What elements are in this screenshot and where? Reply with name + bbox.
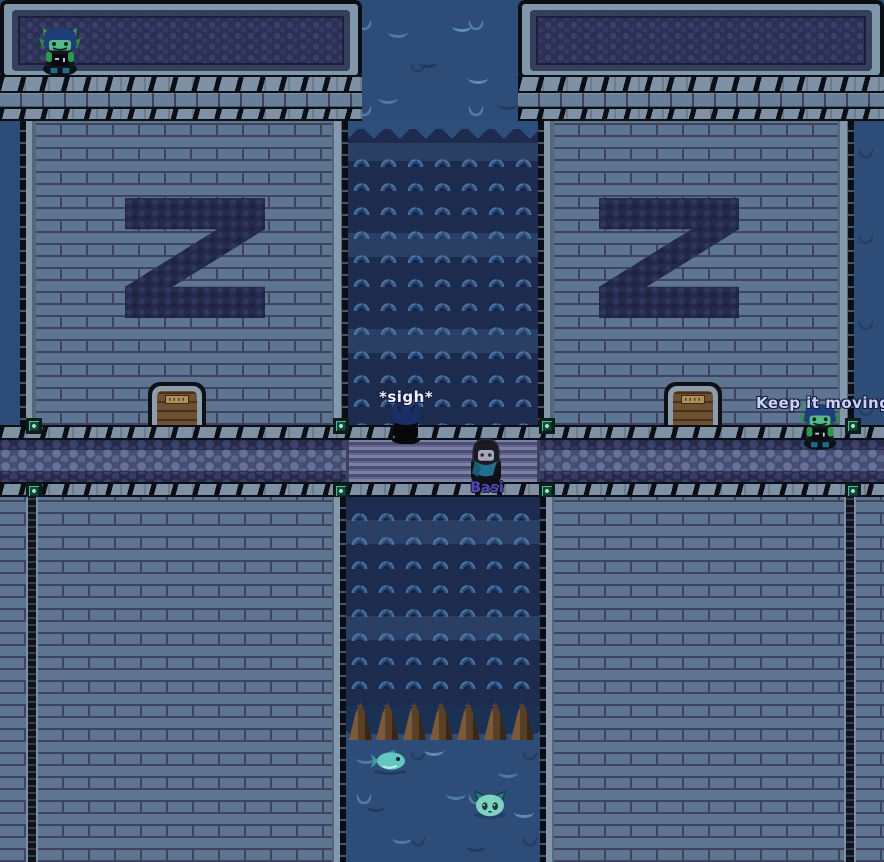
walkway-rail-bottom (0, 482, 884, 497)
corner-gem-block (539, 418, 555, 434)
door-sign (165, 395, 189, 404)
battlement-rail (0, 107, 362, 121)
name-label-basi: Basi (470, 480, 503, 496)
waterfall-lower (346, 497, 540, 712)
waterfall-lip (348, 129, 538, 143)
waterfall-source (348, 121, 538, 129)
wave-arc (452, 20, 472, 32)
ledge-row (518, 93, 884, 107)
wave-arc (466, 840, 486, 852)
wave-arc (424, 744, 444, 756)
battlement-platform-right (518, 0, 884, 79)
wall-seam (26, 497, 38, 862)
lower-wall-left (38, 497, 332, 862)
wave-arc (378, 92, 398, 104)
door-sign (681, 395, 705, 404)
wave-arc (514, 806, 534, 818)
speech-keep-it-moving: Keep it moving (756, 394, 884, 412)
wall-edge-trim (540, 497, 554, 862)
corner-gem-block (333, 418, 349, 434)
lower-wall-right (554, 497, 844, 862)
battlement-rail (518, 107, 884, 121)
corner-gem-block (845, 418, 861, 434)
wall-edge-trim (538, 121, 554, 425)
water-cat (472, 789, 508, 819)
wave-arc (366, 800, 386, 812)
corner-gem-block (26, 418, 42, 434)
speech-sigh: *sigh* (379, 388, 433, 406)
wave-arc (418, 56, 438, 68)
wall-edge-trim (332, 121, 348, 425)
wave-arc (468, 72, 488, 84)
lower-wall-right-pier (856, 497, 884, 862)
wall-edge-trim (20, 121, 36, 425)
wave-arc (498, 98, 518, 110)
wall-edge-trim (838, 121, 854, 425)
ledge-row (0, 93, 362, 107)
battlement-rail (0, 75, 362, 93)
fish (370, 749, 408, 775)
upper-wall-right (554, 121, 838, 425)
wave-arc (388, 26, 408, 38)
lizard-guard-top-left[interactable] (37, 26, 83, 76)
bridge (346, 440, 540, 482)
wall-seam (844, 497, 856, 862)
wave-arc (392, 832, 412, 844)
waterfall-upper (348, 143, 538, 425)
platform-floor (530, 10, 872, 71)
lower-wall-left-pier (0, 497, 26, 862)
battlement-rail (518, 75, 884, 93)
walkway-rail-top (0, 425, 884, 440)
wall-edge-trim (332, 497, 346, 862)
game-viewport[interactable]: Z Z (0, 0, 884, 862)
wave-arc (446, 788, 466, 800)
wave-arc (498, 766, 518, 778)
